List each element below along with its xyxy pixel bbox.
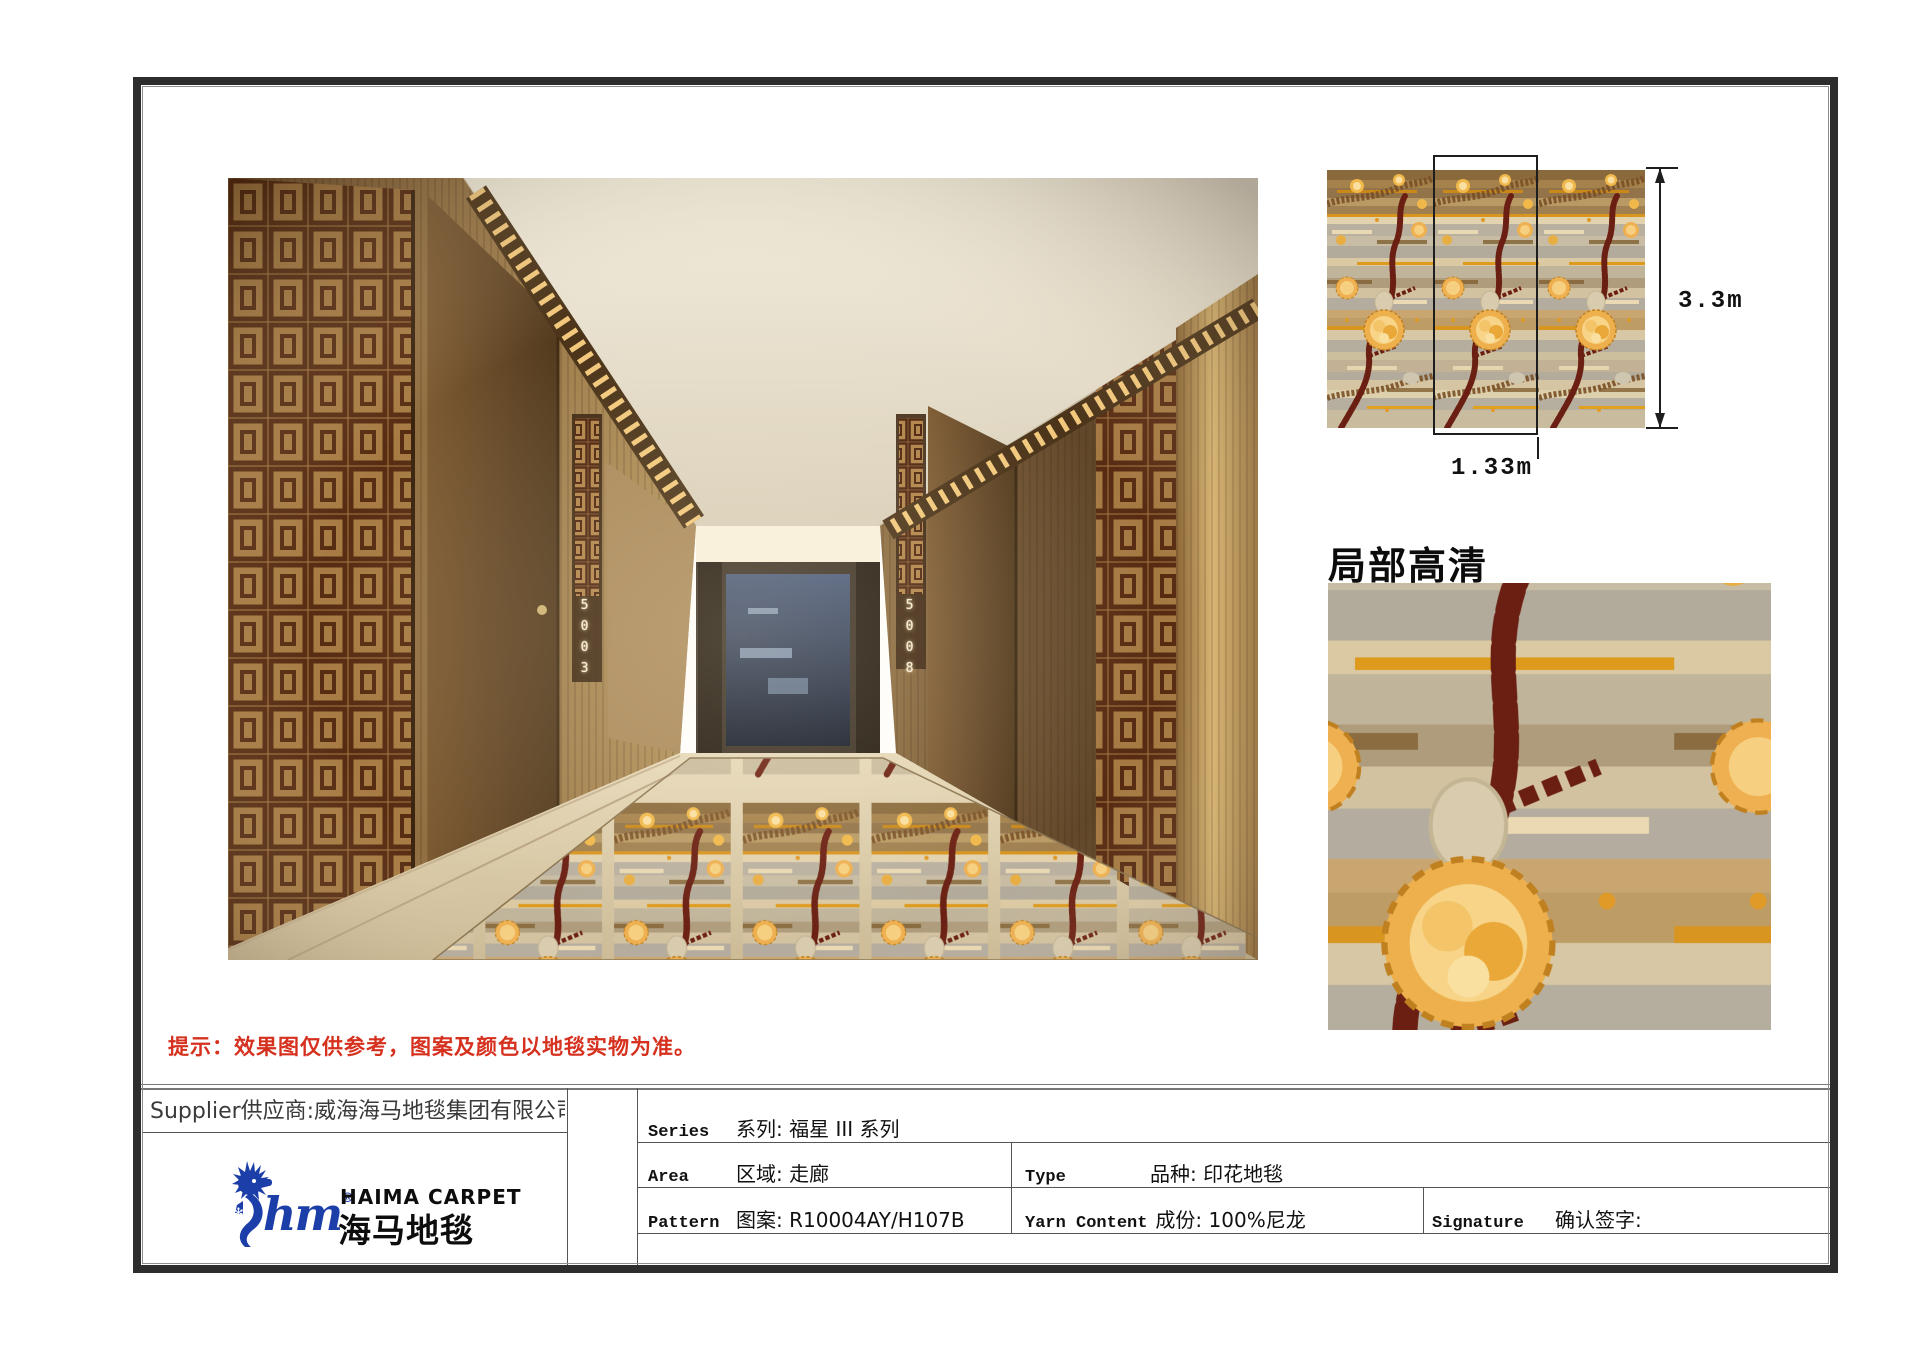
pattern-repeat-outline — [1433, 155, 1538, 435]
signature-cell: Signature 确认签字: — [1432, 1204, 1642, 1233]
table-hline-area — [637, 1187, 1830, 1188]
type-label-en: Type — [1025, 1168, 1150, 1187]
series-value: 系列: 福星 III 系列 — [736, 1113, 900, 1142]
height-dimension-label: 3.3m — [1678, 288, 1744, 315]
yarn-content-value: 成份: 100%尼龙 — [1155, 1204, 1305, 1233]
table-hline-pattern — [637, 1233, 1830, 1234]
width-dimension-line — [1537, 437, 1539, 459]
carpet-closeup-image — [1328, 583, 1771, 1030]
haima-logo-mark-text: hm — [263, 1187, 341, 1241]
table-top-line-2 — [141, 1088, 1830, 1090]
table-vline-1 — [567, 1088, 568, 1265]
series-label-en: Series — [648, 1123, 736, 1142]
series-cell: Series 系列: 福星 III 系列 — [648, 1113, 900, 1142]
width-dimension-label: 1.33m — [1451, 455, 1533, 482]
supplier-label: Supplier供应商:威海海马地毯集团有限公司 — [150, 1093, 565, 1125]
pattern-value: 图案: R10004AY/H107B — [736, 1204, 965, 1233]
lighting-overlay — [228, 178, 1258, 960]
table-vline-4 — [1423, 1187, 1424, 1233]
corridor-render: 5003 5008 — [228, 178, 1258, 960]
table-vline-2 — [637, 1088, 638, 1265]
signature-value: 确认签字: — [1555, 1204, 1642, 1233]
corridor-scene — [228, 178, 1258, 960]
svg-text:✻: ✻ — [233, 1206, 244, 1221]
type-cell: Type 品种: 印花地毯 — [1025, 1158, 1283, 1187]
notice-text: 提示：效果图仅供参考，图案及颜色以地毯实物为准。 — [168, 1031, 696, 1061]
area-label-en: Area — [648, 1168, 736, 1187]
supplier-underline — [143, 1132, 567, 1133]
right-door-number: 5008 — [902, 598, 917, 682]
haima-logo-name-cn: 海马地毯 — [338, 1204, 474, 1252]
area-value: 区域: 走廊 — [736, 1158, 829, 1187]
type-value: 品种: 印花地毯 — [1150, 1158, 1283, 1187]
closeup-title: 局部高清 — [1328, 535, 1488, 590]
table-vline-3 — [1011, 1142, 1012, 1233]
table-hline-series — [637, 1142, 1830, 1143]
document-canvas: 5003 5008 3.3m 1.33m 局部高 — [0, 0, 1920, 1357]
pattern-label-en: Pattern — [648, 1214, 736, 1233]
yarn-content-label-en: Yarn Content — [1025, 1214, 1147, 1233]
page-frame: 5003 5008 3.3m 1.33m 局部高 — [133, 77, 1838, 1273]
area-cell: Area 区域: 走廊 — [648, 1158, 829, 1187]
signature-label-en: Signature — [1432, 1214, 1555, 1233]
yarn-content-cell: Yarn Content 成份: 100%尼龙 — [1025, 1204, 1306, 1233]
table-top-line-1 — [141, 1084, 1830, 1085]
left-door-number: 5003 — [577, 598, 592, 682]
pattern-cell: Pattern 图案: R10004AY/H107B — [648, 1204, 965, 1233]
